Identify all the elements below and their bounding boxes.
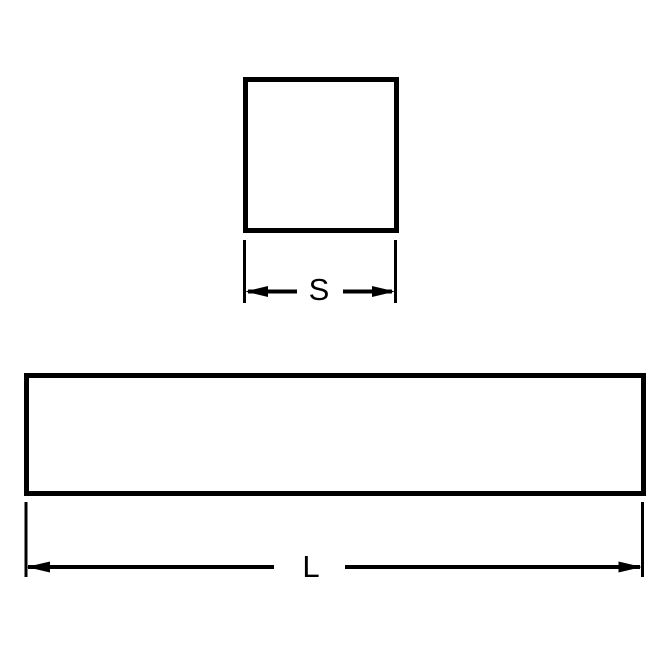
s-dimension-label: S [309, 272, 330, 307]
l-arrowhead-left-icon [27, 562, 51, 573]
key-steel-dimension-diagram: S L [0, 0, 670, 670]
s-arrowhead-right-icon [372, 286, 395, 297]
l-arrowhead-right-icon [619, 562, 643, 573]
bar-profile-outline [27, 376, 644, 494]
square-cross-section-outline [246, 80, 397, 231]
technical-drawing-canvas: S L [0, 0, 670, 670]
l-dimension-label: L [302, 549, 319, 584]
s-arrowhead-left-icon [245, 286, 268, 297]
